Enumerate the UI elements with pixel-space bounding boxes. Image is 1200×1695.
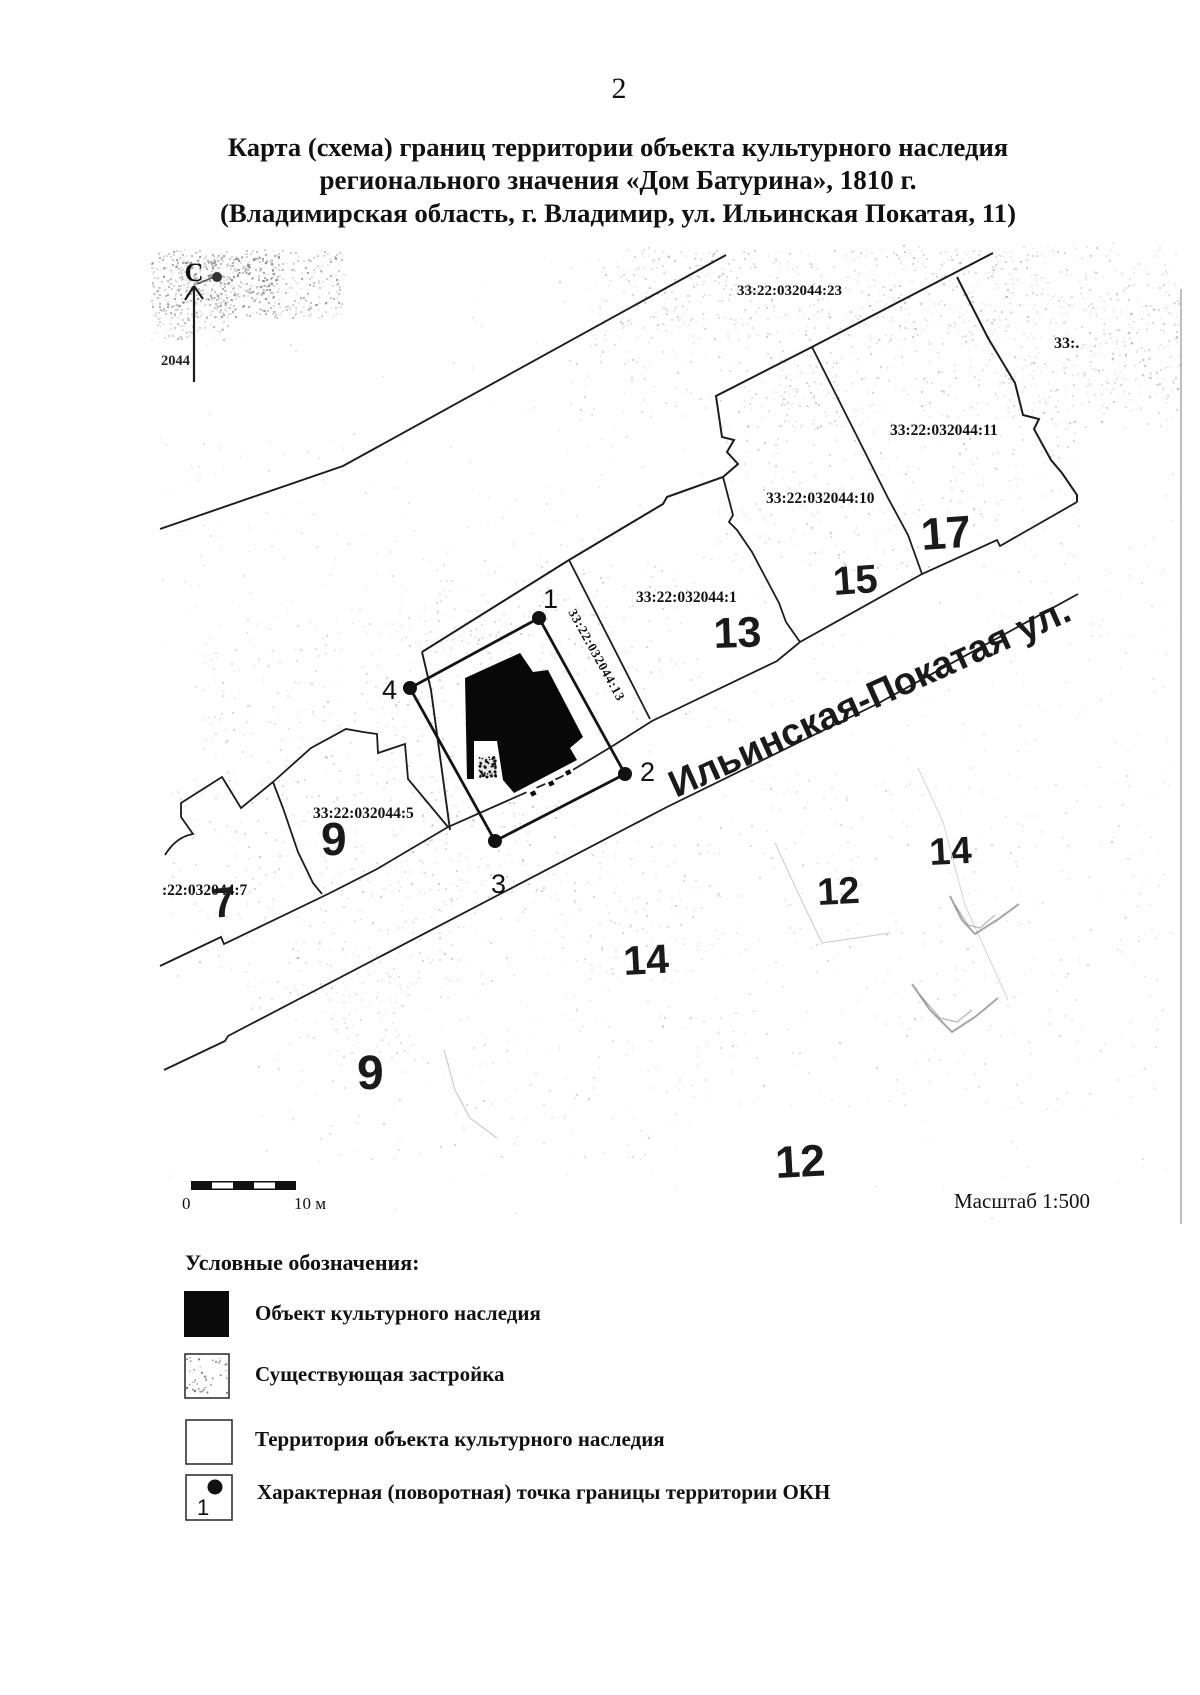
- svg-text:Карта (схема) границ территори: Карта (схема) границ территории объекта …: [228, 132, 1008, 162]
- svg-text:регионального значения «Дом Ба: регионального значения «Дом Батурина», 1…: [319, 165, 916, 195]
- svg-text:(Владимирская область, г. Влад: (Владимирская область, г. Владимир, ул. …: [220, 198, 1016, 228]
- svg-text:2: 2: [612, 72, 627, 105]
